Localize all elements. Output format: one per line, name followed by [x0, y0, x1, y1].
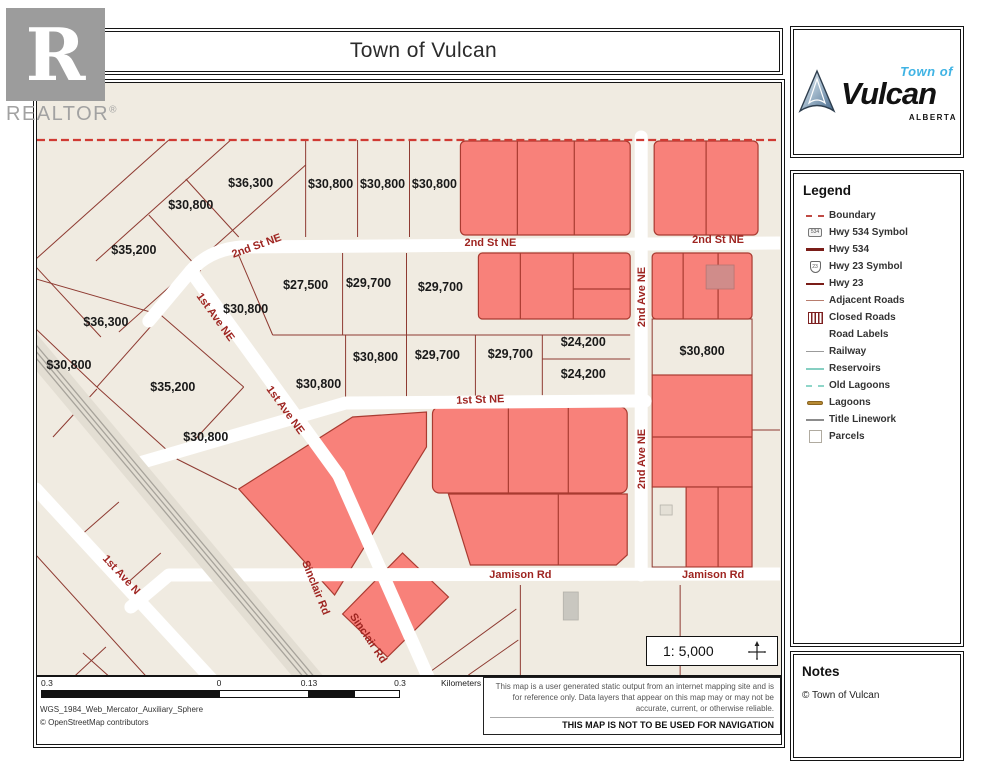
- street-name-label: 2nd St NE: [464, 237, 516, 249]
- parcel-price-label: $27,500: [283, 278, 328, 292]
- scalebar-segment: [309, 690, 354, 698]
- legend-item: Hwy 534: [801, 241, 953, 258]
- legend-title: Legend: [803, 183, 953, 198]
- scalebar: [41, 690, 400, 698]
- page-title: Town of Vulcan: [68, 39, 779, 63]
- legend-box: Legend Boundary534Hwy 534 SymbolHwy 5342…: [790, 170, 964, 647]
- title-bar: Town of Vulcan: [64, 28, 783, 75]
- street-name-label: 2nd Ave NE: [636, 267, 648, 327]
- realtor-wordmark: REALTOR: [6, 103, 109, 125]
- scalebar-segment: [219, 690, 309, 698]
- realtor-r-letter: R: [26, 19, 86, 91]
- adjacent-icon: [806, 300, 824, 302]
- scalebar-segment: [354, 690, 400, 698]
- parcel-price-label: $30,800: [360, 177, 405, 191]
- closed-icon: [808, 312, 823, 324]
- map-area: 2nd St NE2nd St NE2nd St NE1st St NE2nd …: [37, 83, 781, 677]
- map-footer: 0.300.130.3 Kilometers WGS_1984_Web_Merc…: [37, 677, 781, 737]
- navigation-warning: THIS MAP IS NOT TO BE USED FOR NAVIGATIO…: [490, 717, 774, 730]
- legend-item-label: Old Lagoons: [829, 380, 890, 391]
- legend-item: 534Hwy 534 Symbol: [801, 224, 953, 241]
- vulcan-logo: Town of Vulcan ALBERTA: [797, 64, 957, 120]
- hwy23-icon: [806, 283, 824, 285]
- parcel-price-label: $30,800: [353, 350, 398, 364]
- legend-item: Closed Roads: [801, 309, 953, 326]
- notes-title: Notes: [802, 664, 952, 679]
- scalebar-segment: [41, 690, 219, 698]
- legend-item: Lagoons: [801, 394, 953, 411]
- parcel-price-label: $30,800: [223, 302, 268, 316]
- legend-item-label: Reservoirs: [829, 363, 881, 374]
- map-frame: 2nd St NE2nd St NE2nd St NE1st St NE2nd …: [33, 79, 785, 748]
- parcel-price-label: $30,800: [46, 358, 91, 372]
- legend-item-label: Hwy 23: [829, 278, 863, 289]
- legend-item: Boundary: [801, 207, 953, 224]
- scalebar-units: Kilometers: [441, 678, 481, 688]
- parcel-price-label: $30,800: [680, 344, 725, 358]
- legend-item-label: Title Linework: [829, 414, 896, 425]
- parcel-price-label: $30,800: [168, 198, 213, 212]
- parcel-price-label: $29,700: [418, 280, 463, 294]
- hwy534-sym-icon: 534: [808, 228, 822, 237]
- scalebar-tick-label: 0.13: [301, 678, 318, 688]
- parcel-price-label: $30,800: [183, 430, 228, 444]
- vulcan-delta-icon: [797, 69, 837, 115]
- street-name-label: 2nd Ave NE: [636, 429, 648, 489]
- legend-item-label: Boundary: [829, 210, 876, 221]
- legend-item-label: Road Labels: [829, 329, 888, 340]
- railway-icon: [806, 351, 824, 353]
- legend-item: Parcels: [801, 428, 953, 445]
- vulcan-logo-province: ALBERTA: [909, 113, 957, 122]
- parcel-price-label: $29,700: [346, 276, 391, 290]
- scalebar-tick-label: 0.3: [394, 678, 406, 688]
- legend-item: Railway: [801, 343, 953, 360]
- none-icon: [806, 334, 824, 335]
- parcel-price-label: $24,200: [561, 335, 606, 349]
- parcel-price-label: $35,200: [111, 243, 156, 257]
- parcel-price-label: $36,300: [83, 315, 128, 329]
- legend-items: Boundary534Hwy 534 SymbolHwy 53423Hwy 23…: [801, 207, 953, 445]
- parcel-price-label: $35,200: [150, 380, 195, 394]
- boundary-icon: [806, 215, 824, 217]
- legend-item-label: Adjacent Roads: [829, 295, 905, 306]
- legend-item: Reservoirs: [801, 360, 953, 377]
- legend-item: Title Linework: [801, 411, 953, 428]
- reservoir-icon: [806, 368, 824, 370]
- legend-item: Hwy 23: [801, 275, 953, 292]
- legend-item: Adjacent Roads: [801, 292, 953, 309]
- legend-item-label: Lagoons: [829, 397, 871, 408]
- realtor-logo: R REALTOR®: [6, 8, 126, 126]
- hwy23-sym-icon: 23: [810, 261, 821, 273]
- north-arrow-icon: [746, 640, 768, 662]
- legend-item: Old Lagoons: [801, 377, 953, 394]
- map-canvas: 2nd St NE2nd St NE2nd St NE1st St NE2nd …: [37, 83, 780, 675]
- notes-box: Notes © Town of Vulcan: [790, 651, 964, 761]
- map-sheet: Town of Vulcan: [0, 0, 993, 768]
- scalebar-tick-label: 0.3: [41, 678, 53, 688]
- legend-item-label: Parcels: [829, 431, 865, 442]
- disclaimer-box: This map is a user generated static outp…: [483, 677, 781, 735]
- street-name-label: 1st St NE: [456, 393, 505, 407]
- parcel-price-label: $30,800: [412, 177, 457, 191]
- scalebar-tick-label: 0: [217, 678, 222, 688]
- legend-item-label: Hwy 23 Symbol: [829, 261, 902, 272]
- legend-item-label: Railway: [829, 346, 866, 357]
- osm-credit: © OpenStreetMap contributors: [40, 718, 149, 727]
- scale-ratio: 1: 5,000: [647, 643, 714, 659]
- street-name-label: Jamison Rd: [489, 569, 551, 581]
- parcel-price-label: $24,200: [561, 367, 606, 381]
- scale-box: 1: 5,000: [646, 636, 778, 666]
- vulcan-logo-name: Vulcan: [841, 76, 936, 112]
- lagoon-icon: [807, 401, 823, 405]
- street-name-label: Jamison Rd: [682, 569, 744, 581]
- legend-item-label: Closed Roads: [829, 312, 896, 323]
- disclaimer-text: This map is a user generated static outp…: [490, 681, 774, 715]
- realtor-r-block: R: [6, 8, 105, 101]
- vulcan-logo-box: Town of Vulcan ALBERTA: [790, 26, 964, 158]
- parcels-icon: [809, 430, 822, 443]
- projection-text: WGS_1984_Web_Mercator_Auxiliary_Sphere: [40, 705, 203, 714]
- hwy534-icon: [806, 248, 824, 251]
- parcel-price-label: $29,700: [415, 348, 460, 362]
- parcel-price-label: $29,700: [488, 347, 533, 361]
- parcel-price-label: $30,800: [308, 177, 353, 191]
- legend-item-label: Hwy 534: [829, 244, 869, 255]
- legend-item: 23Hwy 23 Symbol: [801, 258, 953, 275]
- legend-item: Road Labels: [801, 326, 953, 343]
- street-name-label: 2nd St NE: [692, 234, 744, 246]
- parcel-price-label: $30,800: [296, 377, 341, 391]
- registered-mark: ®: [109, 104, 118, 115]
- oldlagoon-icon: [806, 385, 824, 387]
- legend-item-label: Hwy 534 Symbol: [829, 227, 908, 238]
- notes-copyright: © Town of Vulcan: [802, 690, 952, 701]
- titlework-icon: [806, 419, 824, 421]
- parcel-price-label: $36,300: [228, 176, 273, 190]
